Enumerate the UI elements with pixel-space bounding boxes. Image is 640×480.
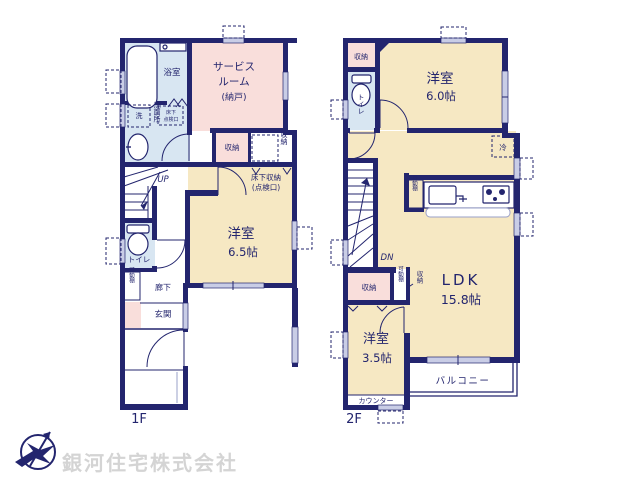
ldk-label: LDK bbox=[442, 271, 481, 289]
ldk-size: 15.8帖 bbox=[441, 292, 481, 307]
storage1-label: 収納 bbox=[225, 142, 240, 152]
entrance-label: 玄関 bbox=[154, 309, 171, 320]
window bbox=[343, 332, 348, 358]
window bbox=[223, 38, 244, 43]
stairs-down-label: DN bbox=[381, 253, 395, 263]
counter-overhang bbox=[426, 208, 510, 217]
floor-plan-canvas: 浴室 洗 洗面所 床下 点検口 サービス ルーム (納戸) 収納 収納 床下収納… bbox=[0, 0, 640, 480]
storage2-dashed bbox=[252, 135, 278, 161]
underfloor-storage-label-2: (点検口) bbox=[252, 182, 280, 192]
storage-small-label: 収納 bbox=[415, 270, 423, 285]
window bbox=[183, 303, 188, 329]
western-room-60-size: 6.0帖 bbox=[426, 89, 456, 103]
faucet-icon bbox=[163, 45, 167, 49]
company-logo: 銀河住宅株式会社 bbox=[15, 432, 238, 475]
door-arc bbox=[157, 240, 185, 268]
window bbox=[343, 100, 348, 119]
laundry-label: 洗 bbox=[136, 111, 143, 120]
service-room-label-3: (納戸) bbox=[221, 91, 246, 103]
window bbox=[514, 158, 520, 179]
kitchen-counter bbox=[424, 182, 514, 217]
underfloor-storage-label-1: 床下収納 bbox=[251, 172, 281, 182]
window bbox=[283, 72, 288, 100]
counter-label: カウンター bbox=[359, 396, 394, 405]
window bbox=[343, 240, 348, 265]
western-room-35-area bbox=[346, 303, 406, 395]
window bbox=[378, 405, 403, 410]
floor2-label: 2F bbox=[346, 412, 362, 427]
fridge-label: 冷 bbox=[499, 142, 507, 152]
service-room-label-2: ルーム bbox=[218, 76, 249, 88]
washroom-label: 洗面所 bbox=[153, 101, 161, 124]
window bbox=[292, 327, 298, 363]
toilet1-fixture bbox=[127, 225, 149, 255]
floor1-plan: 浴室 洗 洗面所 床下 点検口 サービス ルーム (納戸) 収納 収納 床下収納… bbox=[106, 26, 312, 427]
shoe-cabinet bbox=[124, 302, 141, 328]
hallway-label: 廊下 bbox=[155, 282, 171, 292]
storage-left-label: 収納 bbox=[362, 282, 377, 292]
bathtub bbox=[127, 46, 157, 108]
floor1-label: 1F bbox=[131, 412, 147, 427]
western-room-65-size: 6.5帖 bbox=[228, 245, 258, 259]
kitchen-shelf-label: 可動棚 bbox=[411, 175, 418, 193]
kitchen-sink bbox=[429, 186, 456, 204]
western-room-60-label: 洋室 bbox=[427, 70, 454, 87]
window bbox=[292, 221, 297, 250]
storage-top-label: 収納 bbox=[354, 52, 368, 61]
company-name: 銀河住宅株式会社 bbox=[62, 451, 238, 475]
stairs-up-label: UP bbox=[157, 175, 169, 185]
storage2-label: 収納 bbox=[280, 131, 288, 146]
window bbox=[441, 38, 466, 43]
western-room-35-label: 洋室 bbox=[363, 331, 389, 347]
western-room-35-size: 3.5帖 bbox=[362, 351, 392, 365]
hatch-label-1: 床下 bbox=[166, 109, 176, 116]
entrance-door-arc bbox=[147, 330, 184, 367]
western-room-65-label: 洋室 bbox=[228, 225, 255, 242]
bathroom-label: 浴室 bbox=[163, 67, 181, 78]
toilet1-label: トイレ bbox=[128, 255, 151, 264]
movable-shelf2-label: 可動棚 bbox=[397, 266, 404, 284]
movable-shelf1-label: 可動棚 bbox=[128, 267, 135, 285]
balcony-label: バルコニー bbox=[436, 376, 491, 387]
window bbox=[514, 213, 520, 236]
toilet2-label: トイレ bbox=[357, 94, 365, 115]
hatch-label-2: 点検口 bbox=[163, 116, 178, 123]
floor2-plan: 収納 トイレ 洋室 6.0帖 冷 可動棚 DN 収納 可動棚 収納 LDK 15… bbox=[331, 27, 533, 427]
service-room-label-1: サービス bbox=[213, 61, 255, 73]
